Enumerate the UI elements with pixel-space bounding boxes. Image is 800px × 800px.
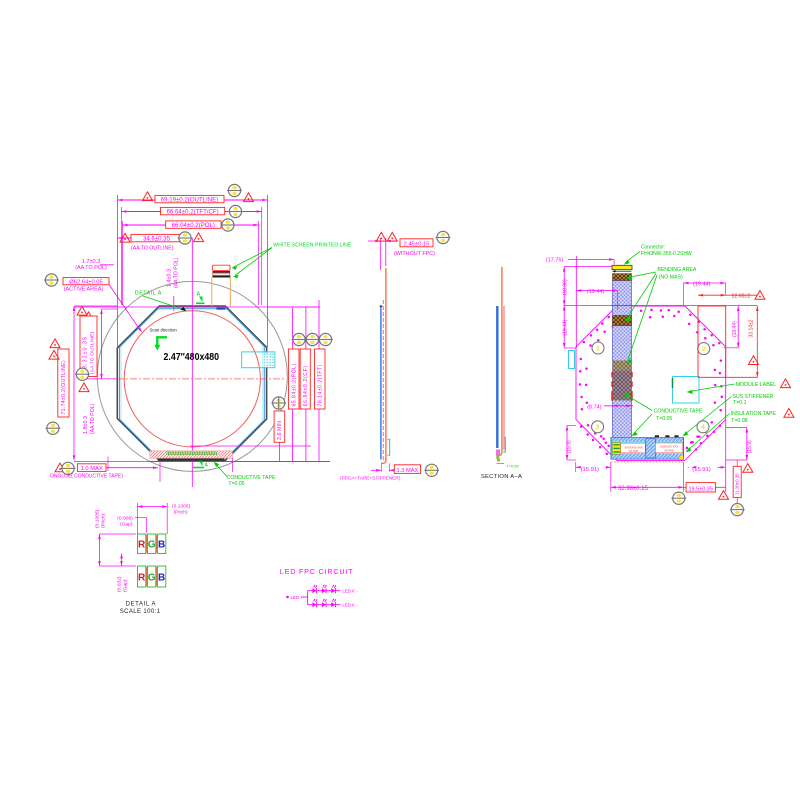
svg-text:33.14±2: 33.14±2 bbox=[748, 319, 754, 337]
svg-text:(0.1305): (0.1305) bbox=[95, 509, 101, 528]
svg-text:WHITE SCREEN PRINTED LINE: WHITE SCREEN PRINTED LINE bbox=[273, 242, 352, 248]
svg-text:2.47″480x480: 2.47″480x480 bbox=[164, 352, 220, 363]
svg-text:(19.44): (19.44) bbox=[732, 321, 738, 337]
svg-text:SCALE 100:1: SCALE 100:1 bbox=[120, 609, 161, 615]
svg-text:T=0.05: T=0.05 bbox=[228, 481, 244, 487]
svg-text:SECTION A–A: SECTION A–A bbox=[481, 474, 522, 480]
svg-text:(0.006): (0.006) bbox=[117, 516, 133, 522]
svg-text:T=0.08: T=0.08 bbox=[731, 418, 747, 424]
svg-text:(FPCA+TAPE+STIFFENER): (FPCA+TAPE+STIFFENER) bbox=[340, 476, 401, 482]
svg-text:B: B bbox=[158, 540, 165, 551]
svg-text:2.45±0.15: 2.45±0.15 bbox=[404, 242, 430, 248]
svg-text:XXXXXXX-XXX: XXXXXXX-XXX bbox=[624, 445, 642, 449]
svg-text:65.84±0.2(POL): 65.84±0.2(POL) bbox=[291, 363, 297, 406]
svg-text:1.7±0.3: 1.7±0.3 bbox=[82, 259, 101, 265]
svg-text:78.14±0.2(TFT): 78.14±0.2(TFT) bbox=[317, 364, 323, 406]
svg-text:2: 2 bbox=[702, 346, 706, 353]
svg-text:MODULE LABEL: MODULE LABEL bbox=[736, 382, 777, 388]
svg-text:(AA TO OUTLINE): (AA TO OUTLINE) bbox=[131, 246, 174, 252]
svg-text:XX-XXX: XX-XXX bbox=[629, 449, 639, 453]
svg-text:DETAIL A: DETAIL A bbox=[135, 291, 162, 297]
svg-text:12.68±2: 12.68±2 bbox=[732, 293, 751, 299]
svg-text:1.3 MAX: 1.3 MAX bbox=[396, 468, 418, 474]
svg-text:Connector:: Connector: bbox=[641, 245, 665, 251]
svg-text:(AA TO POL): (AA TO POL) bbox=[75, 265, 107, 271]
svg-text:Ø62.64±0.05: Ø62.64±0.05 bbox=[69, 280, 102, 286]
svg-text:4: 4 bbox=[701, 424, 705, 431]
svg-text:LED K -: LED K - bbox=[342, 589, 358, 594]
svg-text:1: 1 bbox=[596, 345, 600, 352]
svg-text:(19.44): (19.44) bbox=[587, 289, 605, 295]
svg-text:66.04±0.2(POL): 66.04±0.2(POL) bbox=[172, 222, 215, 229]
svg-text:CONDUCTIVE TAPE: CONDUCTIVE TAPE bbox=[654, 409, 703, 415]
svg-text:34.6±0.35: 34.6±0.35 bbox=[143, 236, 171, 243]
svg-text:2.6 MIN: 2.6 MIN bbox=[277, 421, 283, 440]
svg-text:(NO MAS): (NO MAS) bbox=[659, 275, 683, 281]
svg-text:(17.75): (17.75) bbox=[546, 258, 564, 264]
svg-text:G: G bbox=[148, 540, 156, 551]
svg-text:T=0.05: T=0.05 bbox=[507, 464, 519, 468]
svg-text:(AA TO POL): (AA TO POL) bbox=[174, 257, 180, 288]
svg-text:XXXXXXX-XXX: XXXXXXX-XXX bbox=[660, 445, 678, 449]
svg-text:(AA TO OUTLINE): (AA TO OUTLINE) bbox=[90, 332, 96, 374]
svg-text:CONDUCTIVE TAPE: CONDUCTIVE TAPE bbox=[227, 475, 276, 481]
svg-text:11.38±0.35: 11.38±0.35 bbox=[735, 473, 740, 495]
svg-text:1.8±0.3: 1.8±0.3 bbox=[83, 416, 89, 434]
svg-text:INSULATION TAPE: INSULATION TAPE bbox=[731, 411, 777, 417]
svg-text:XX-XXX: XX-XXX bbox=[664, 449, 674, 453]
svg-text:1.0 MAX: 1.0 MAX bbox=[81, 466, 103, 472]
svg-text:(19.44): (19.44) bbox=[693, 281, 711, 287]
svg-text:R: R bbox=[138, 573, 146, 584]
svg-text:71.74±0.2(OUTLINE): 71.74±0.2(OUTLINE) bbox=[61, 360, 67, 414]
svg-text:19.5±0.35: 19.5±0.35 bbox=[688, 486, 712, 492]
svg-text:(0.032): (0.032) bbox=[117, 576, 123, 592]
svg-text:(Pitch): (Pitch) bbox=[101, 513, 107, 528]
svg-text:(15.91): (15.91) bbox=[581, 467, 599, 473]
svg-text:(19.44): (19.44) bbox=[562, 319, 568, 335]
svg-text:66.94±0.2(CF): 66.94±0.2(CF) bbox=[303, 365, 309, 406]
svg-text:B: B bbox=[158, 573, 165, 584]
svg-text:T=0.1: T=0.1 bbox=[733, 400, 747, 406]
svg-text:LED +: LED + bbox=[291, 595, 304, 600]
svg-text:69.19±0.2(OUTLINE): 69.19±0.2(OUTLINE) bbox=[161, 197, 219, 204]
svg-text:(15.9): (15.9) bbox=[747, 440, 753, 453]
svg-text:33.32±0.35: 33.32±0.35 bbox=[82, 336, 88, 373]
svg-text:T=0.05: T=0.05 bbox=[656, 416, 672, 422]
svg-text:FH43NW-355-0.2SHW: FH43NW-355-0.2SHW bbox=[641, 251, 692, 257]
svg-text:(8.74): (8.74) bbox=[587, 404, 602, 410]
svg-text:G: G bbox=[148, 573, 156, 584]
svg-text:LED FPC CIRCUIT: LED FPC CIRCUIT bbox=[280, 567, 354, 576]
svg-text:(Gap): (Gap) bbox=[123, 579, 129, 592]
svg-text:ONGLUE( CONDUCTIVE TAPE): ONGLUE( CONDUCTIVE TAPE) bbox=[50, 473, 123, 479]
svg-text:(Pitch): (Pitch) bbox=[174, 510, 189, 516]
svg-text:3: 3 bbox=[596, 424, 600, 431]
svg-text:66.64±0.2(TFT/CF): 66.64±0.2(TFT/CF) bbox=[167, 209, 219, 216]
svg-text:(0.1305): (0.1305) bbox=[172, 504, 191, 510]
svg-text:1.4±0.3: 1.4±0.3 bbox=[167, 269, 173, 287]
svg-text:(ACTIVE AREA): (ACTIVE AREA) bbox=[64, 286, 104, 292]
svg-text:(WITHOUT FPC): (WITHOUT FPC) bbox=[394, 251, 435, 257]
svg-text:(15.9): (15.9) bbox=[567, 440, 573, 453]
svg-text:32.98±0.15: 32.98±0.15 bbox=[618, 486, 649, 492]
svg-text:(Gap): (Gap) bbox=[120, 522, 133, 528]
svg-text:(18.36): (18.36) bbox=[562, 279, 568, 295]
svg-text:(AA TO POL): (AA TO POL) bbox=[90, 403, 96, 434]
svg-text:R: R bbox=[138, 540, 146, 551]
svg-text:Scan direction: Scan direction bbox=[150, 327, 178, 332]
svg-text:DETAIL A: DETAIL A bbox=[126, 602, 156, 608]
svg-text:BENDING AREA: BENDING AREA bbox=[657, 267, 696, 273]
svg-text:A: A bbox=[205, 462, 209, 468]
svg-text:LED K -: LED K - bbox=[342, 603, 358, 608]
